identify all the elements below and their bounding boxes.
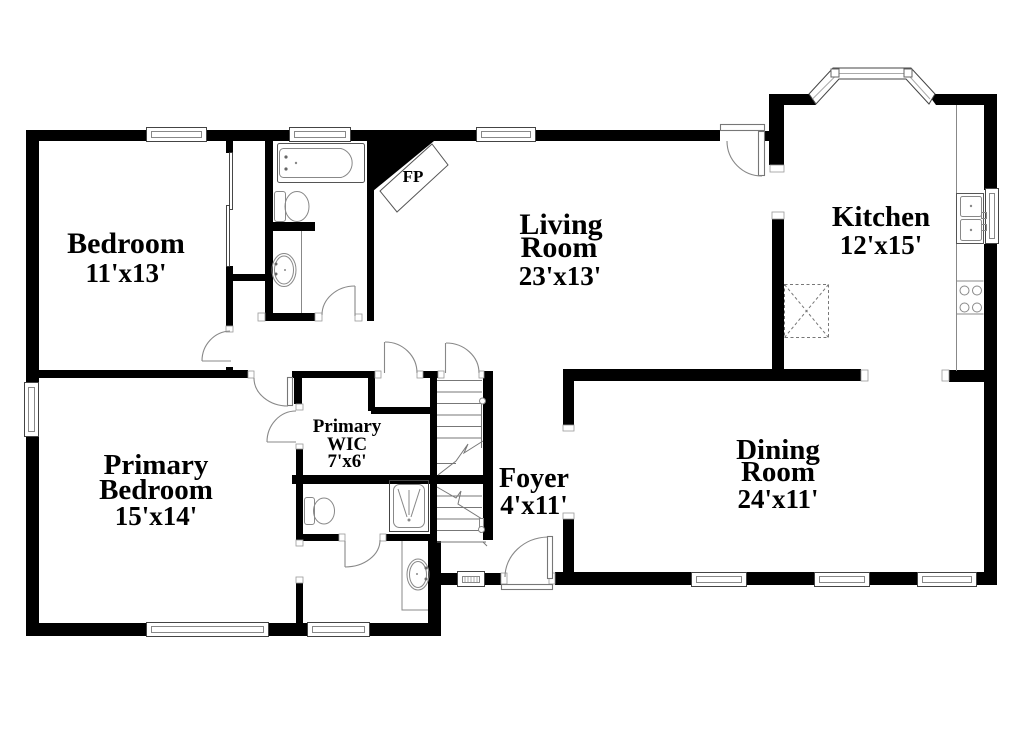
svg-text:Kitchen: Kitchen [832, 201, 930, 233]
svg-text:Bedroom: Bedroom [67, 227, 185, 260]
svg-text:Room: Room [521, 231, 598, 264]
svg-text:15'x14': 15'x14' [115, 501, 198, 531]
svg-text:4'x11': 4'x11' [500, 490, 568, 520]
svg-text:24'x11': 24'x11' [737, 484, 818, 514]
svg-text:7'x6': 7'x6' [327, 451, 366, 472]
svg-text:11'x13': 11'x13' [85, 258, 166, 288]
svg-text:23'x13': 23'x13' [519, 261, 602, 291]
svg-text:FP: FP [403, 167, 424, 186]
svg-text:12'x15': 12'x15' [840, 230, 923, 260]
